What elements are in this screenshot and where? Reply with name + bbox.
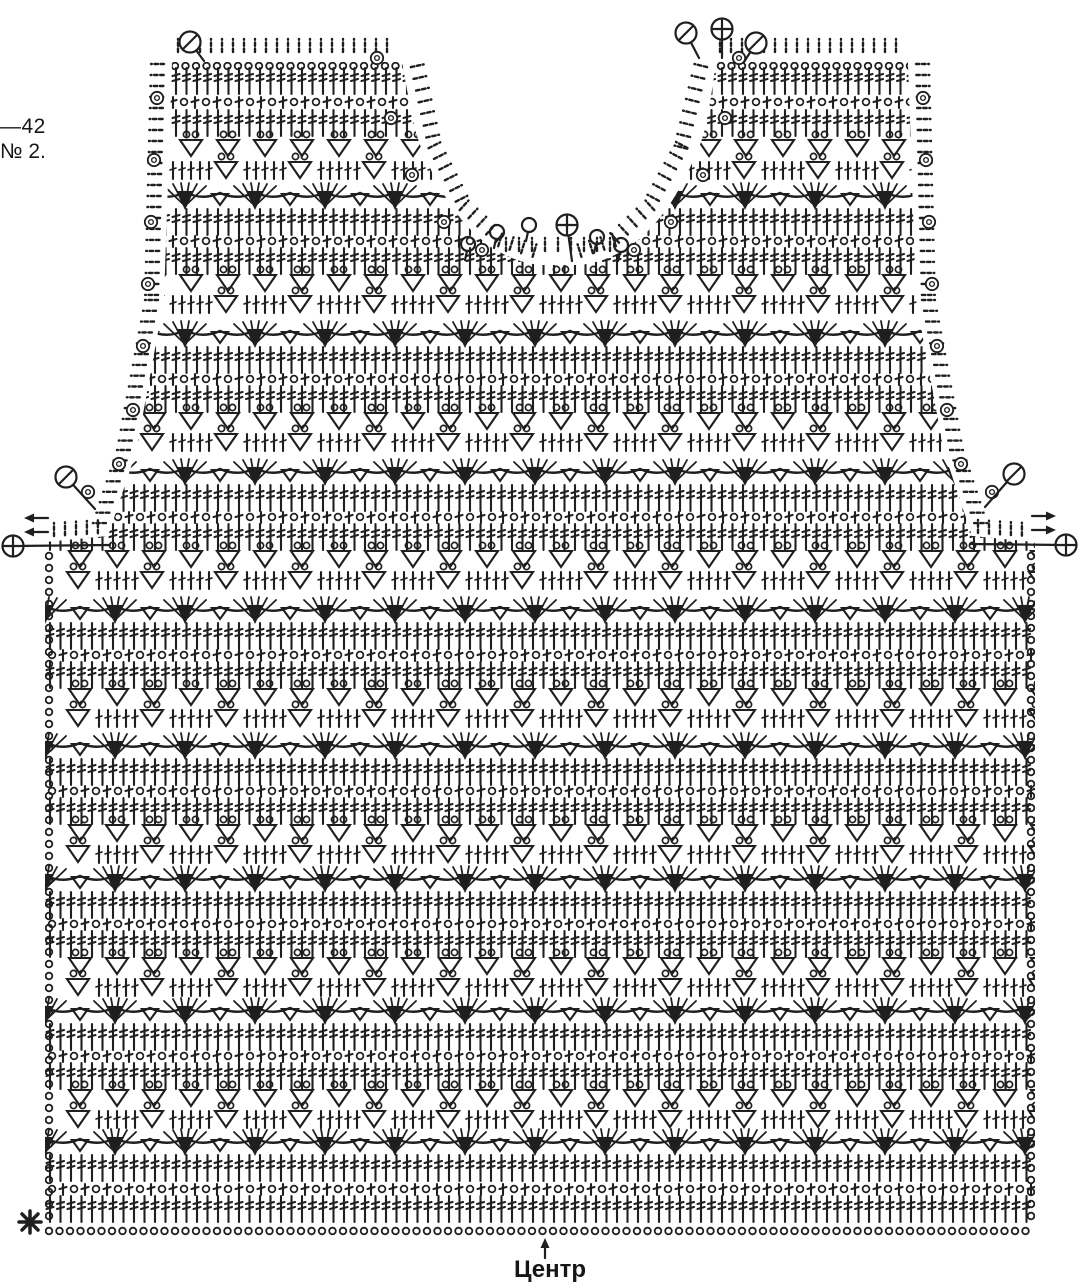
pattern-number-label: № 2. <box>0 140 46 164</box>
crochet-pattern-page: —42 № 2. Центр <box>0 0 1080 1288</box>
size-label: —42 <box>0 115 46 139</box>
center-label: Центр <box>492 1256 608 1284</box>
crochet-chart <box>0 0 1080 1288</box>
